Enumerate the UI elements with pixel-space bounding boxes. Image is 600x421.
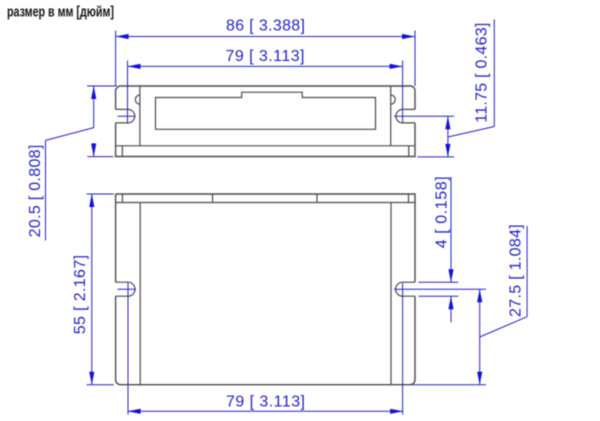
svg-text:27.5 [ 1.084]: 27.5 [ 1.084] xyxy=(507,224,524,317)
svg-text:55 [ 2.167]: 55 [ 2.167] xyxy=(72,255,89,334)
svg-text:79 [ 3.113]: 79 [ 3.113] xyxy=(226,48,305,65)
svg-text:86 [ 3.388]: 86 [ 3.388] xyxy=(226,17,305,34)
svg-text:11.75 [ 0.463]: 11.75 [ 0.463] xyxy=(473,23,490,123)
svg-text:размер в мм [дюйм]: размер в мм [дюйм] xyxy=(7,5,114,21)
svg-text:20.5 [ 0.808]: 20.5 [ 0.808] xyxy=(27,145,44,238)
svg-text:4 [ 0.158]: 4 [ 0.158] xyxy=(433,176,450,248)
svg-text:79 [ 3.113]: 79 [ 3.113] xyxy=(226,393,305,410)
